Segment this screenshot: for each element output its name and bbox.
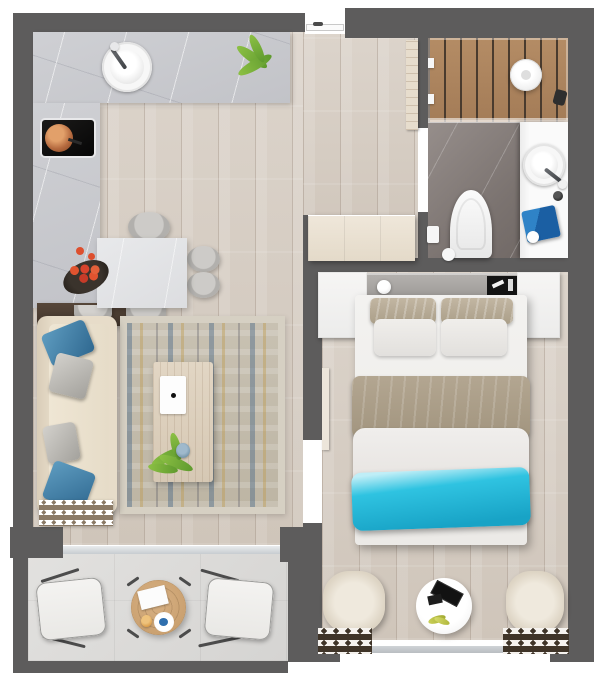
dining-table (97, 238, 187, 308)
double-bed (355, 295, 527, 545)
wall-right (568, 8, 594, 662)
bedroom-armchair (506, 571, 564, 633)
wall-hall-bath-upper (418, 38, 428, 128)
wall-left (13, 32, 33, 527)
amber-drink (141, 615, 152, 627)
shower-head-center (521, 70, 531, 80)
bathroom-door-leaf (406, 40, 418, 130)
soap-dispenser (553, 191, 563, 201)
wall-balcony-corner-left (10, 527, 63, 558)
counter-herb-plant (232, 38, 278, 88)
tray-dot (171, 393, 176, 398)
toilet-seat (456, 198, 486, 250)
hallway-dresser (308, 215, 415, 261)
ball-lamp (377, 280, 391, 294)
deck-hinge (428, 94, 434, 104)
fruit (76, 247, 84, 255)
dining-chair (187, 246, 220, 272)
media-item (492, 280, 505, 289)
sherpa-rug (318, 628, 372, 654)
bedroom-armchair (323, 571, 385, 633)
entry-door-handle (313, 22, 323, 26)
bed-pillow-white (441, 319, 507, 356)
balcony-door-threshold (63, 545, 280, 554)
bedroom-door-leaf (322, 368, 329, 450)
dining-chair (187, 272, 220, 298)
wall-balcony-bedroom-divider (288, 560, 322, 662)
plate-with-food (154, 612, 174, 632)
entry-door-leaf (306, 24, 344, 31)
wall-balcony-left (13, 558, 28, 662)
deck-hinge (428, 58, 434, 68)
blue-cup (176, 443, 190, 458)
shower-deck (428, 38, 568, 122)
wall-top-left (13, 13, 305, 32)
sherpa-rug (503, 628, 569, 654)
waste-bin (442, 248, 455, 261)
plate-food (159, 618, 168, 626)
apartment-floor-plan (0, 0, 607, 692)
soap-bar (527, 231, 539, 243)
bed-pillow-white (374, 319, 436, 356)
balcony-lounge-chair (204, 577, 275, 641)
balcony-lounge-chair (35, 577, 107, 642)
wall-balcony-bottom (13, 661, 288, 673)
kitchen-faucet-base (110, 42, 119, 51)
media-item (508, 279, 513, 291)
coffee-table-plant (146, 434, 198, 484)
sofa-pillow-gray (42, 421, 81, 464)
wall-top-middle (345, 8, 430, 38)
fruit (88, 253, 95, 260)
wall-balcony-corner-right (280, 527, 322, 562)
teal-blanket (351, 467, 531, 531)
table-plant (428, 612, 452, 628)
media-nook (487, 276, 517, 295)
knit-throw (39, 500, 113, 526)
toilet-paper-holder (427, 226, 439, 243)
vanity-faucet-base (558, 180, 567, 189)
